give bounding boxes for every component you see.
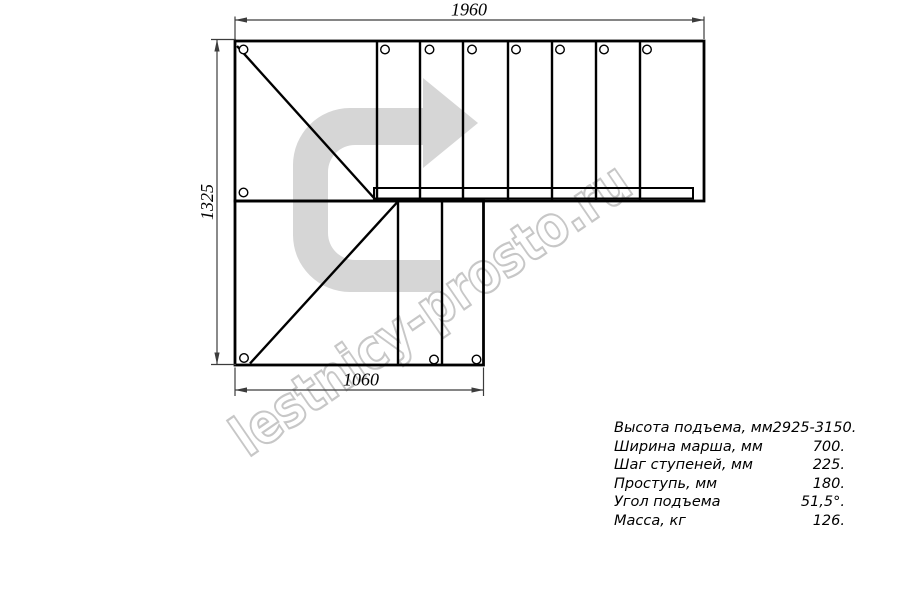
spec-label: Проступь, мм xyxy=(614,475,717,494)
hole-marker-icon xyxy=(472,355,481,364)
hole-marker-icon xyxy=(240,354,249,363)
hole-marker-icon xyxy=(512,45,521,54)
dimension-top-label: 1960 xyxy=(451,0,487,20)
hole-marker-icon xyxy=(468,45,477,54)
hole-marker-icon xyxy=(643,45,652,54)
spec-value: 126. xyxy=(813,512,845,531)
dim-arrow-icon xyxy=(214,40,219,52)
spec-row: Масса, кг 126. xyxy=(614,512,845,531)
stringer-strip xyxy=(374,188,693,199)
dimension-left-label: 1325 xyxy=(197,184,217,220)
spec-label: Высота подъема, мм xyxy=(614,419,773,438)
spec-label: Угол подъема xyxy=(614,493,721,512)
dimension-top: 1960 xyxy=(235,0,704,39)
spec-label: Шаг ступеней, мм xyxy=(614,456,753,475)
spec-value: 51,5°. xyxy=(801,493,845,512)
hole-marker-icon xyxy=(430,355,439,364)
spec-label: Ширина марша, мм xyxy=(614,438,763,457)
spec-label: Масса, кг xyxy=(614,512,686,531)
spec-value: 2925-3150. xyxy=(773,419,857,438)
hole-marker-icon xyxy=(600,45,609,54)
dim-arrow-icon xyxy=(692,17,704,22)
spec-row: Проступь, мм 180. xyxy=(614,475,845,494)
hole-marker-icon xyxy=(556,45,565,54)
stair-plan-page: lestnicy-prosto.ru xyxy=(0,0,900,600)
hole-marker-icon xyxy=(381,45,390,54)
dimension-left: 1325 xyxy=(197,40,236,365)
dimension-bottom-label: 1060 xyxy=(343,370,379,390)
dim-arrow-icon xyxy=(235,17,247,22)
spec-row: Шаг ступеней, мм 225. xyxy=(614,456,845,475)
hole-marker-icon xyxy=(239,188,248,197)
spec-value: 700. xyxy=(813,438,845,457)
spec-row: Ширина марша, мм 700. xyxy=(614,438,845,457)
spec-row: Угол подъема 51,5°. xyxy=(614,493,845,512)
spec-value: 180. xyxy=(813,475,845,494)
hole-marker-icon xyxy=(239,45,248,54)
dim-arrow-icon xyxy=(214,353,219,365)
hole-marker-icon xyxy=(425,45,434,54)
spec-row: Высота подъема, мм 2925-3150. xyxy=(614,419,845,438)
spec-value: 225. xyxy=(813,456,845,475)
dim-arrow-icon xyxy=(472,387,484,392)
spec-table: Высота подъема, мм 2925-3150. Ширина мар… xyxy=(614,419,845,530)
dim-arrow-icon xyxy=(235,387,247,392)
